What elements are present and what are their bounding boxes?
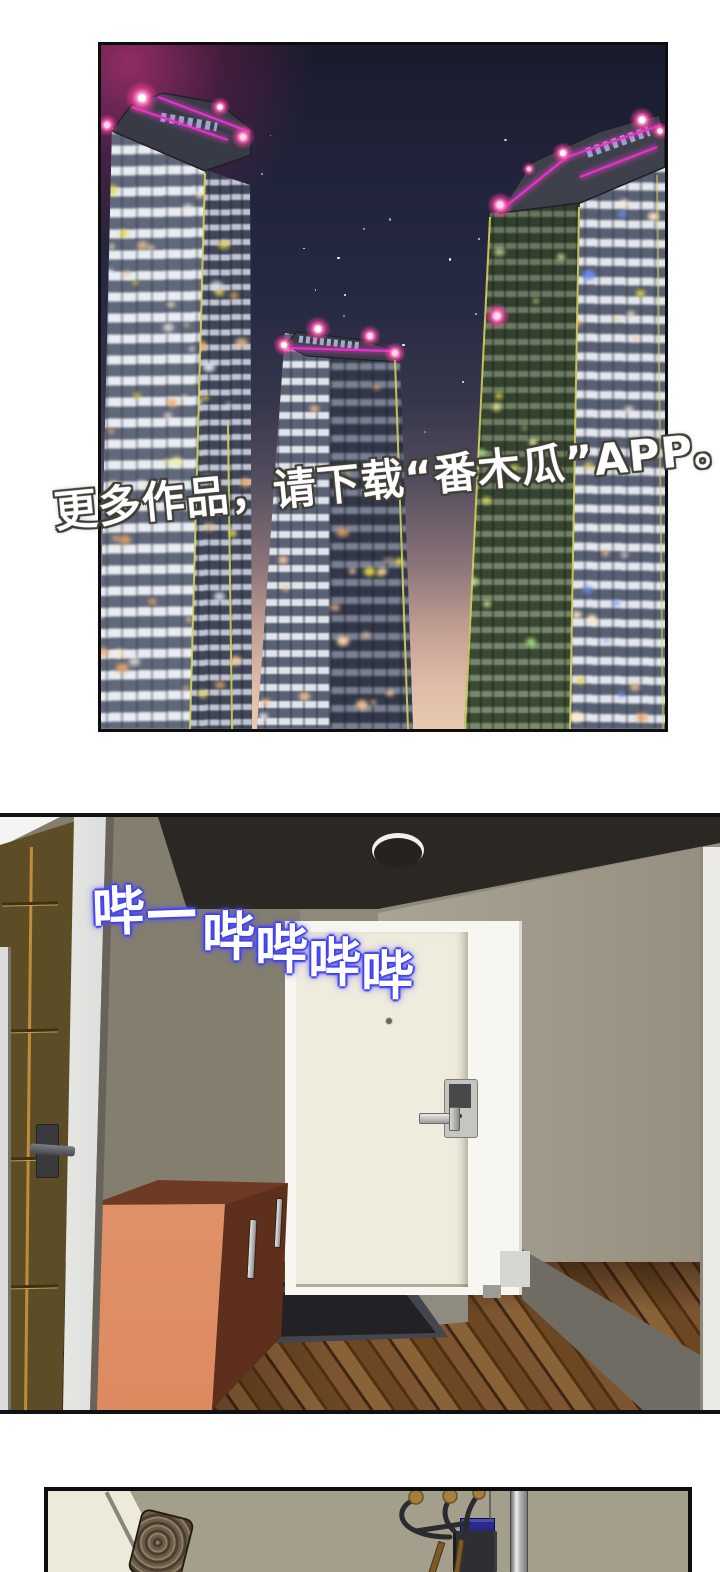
frame-base-block <box>483 1285 501 1298</box>
panel-city-night <box>98 42 668 732</box>
right-door-jamb <box>700 847 720 1410</box>
door-trim-line <box>24 847 33 1410</box>
ceiling-lamp <box>374 838 422 868</box>
lock-keypad-screen <box>449 1084 471 1108</box>
door-groove <box>2 901 58 906</box>
lock-body-knob <box>449 1107 460 1131</box>
hinge-side-strip <box>0 947 11 1410</box>
peephole <box>386 1018 392 1024</box>
lamp-pole <box>510 1491 528 1572</box>
frame-base-shadow <box>500 1251 530 1287</box>
panel-interior-partial <box>44 1487 692 1572</box>
sfx-long-beep: 哔— <box>91 883 199 940</box>
panel-hallway: 哔— 哔哔哔哔 <box>0 813 720 1414</box>
sfx-beeps: 哔哔哔哔 <box>202 911 414 964</box>
coat-rack <box>388 1491 518 1572</box>
